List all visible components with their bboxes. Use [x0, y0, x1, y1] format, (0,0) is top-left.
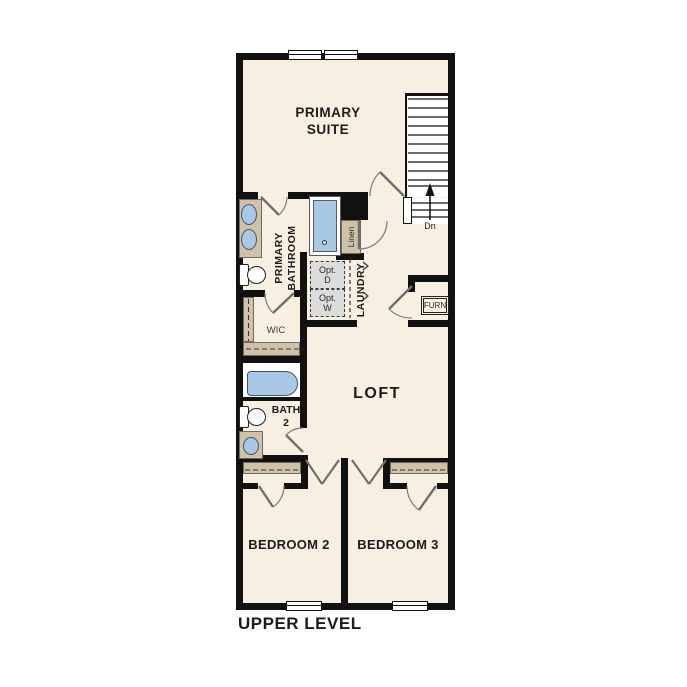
door-primary-suite — [370, 172, 404, 196]
primary-suite-label: PRIMARY SUITE — [268, 104, 388, 138]
laundry-label: LAUNDRY — [355, 255, 367, 325]
floor-plan: Opt. D Opt. W FURN — [0, 0, 687, 687]
stair-direction-arrow-icon — [426, 183, 435, 220]
plan-title: UPPER LEVEL — [238, 614, 438, 634]
bedroom3-label: BEDROOM 3 — [348, 537, 448, 552]
wic-label: WIC — [256, 325, 296, 336]
door-bedroom2-closet — [259, 486, 284, 507]
bedroom2-label: BEDROOM 2 — [239, 537, 339, 552]
linen-label: Linen — [346, 217, 356, 257]
bath2-label: BATH 2 — [266, 404, 306, 430]
door-bedroom3-closet — [407, 486, 436, 510]
door-linen — [359, 221, 387, 249]
door-bedroom3-entry — [352, 460, 386, 484]
door-furnace — [389, 286, 412, 318]
door-bedroom2-entry — [306, 460, 339, 484]
stairs-down-label: Dn — [416, 221, 444, 231]
stair-treads — [406, 94, 448, 217]
door-bath2 — [286, 428, 303, 452]
primary-bathroom-label: PRIMARY BATHROOM — [273, 198, 299, 318]
loft-label: LOFT — [327, 385, 427, 403]
